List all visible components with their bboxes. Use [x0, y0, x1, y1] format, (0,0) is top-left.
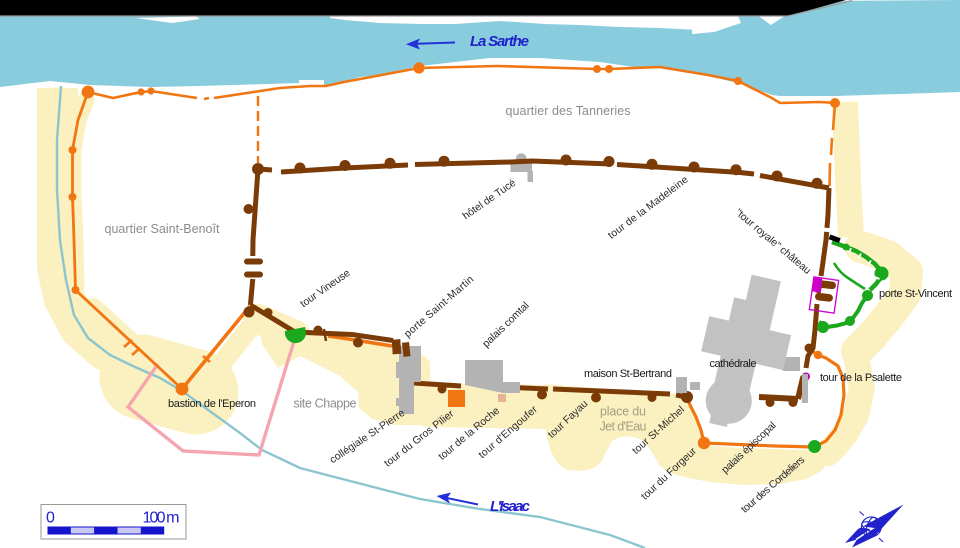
svg-text:0: 0 — [46, 510, 55, 527]
svg-text:quartier des Tanneries: quartier des Tanneries — [506, 104, 631, 118]
svg-text:tour de la Psalette: tour de la Psalette — [820, 372, 902, 384]
svg-text:bastion de l'Eperon: bastion de l'Eperon — [168, 398, 256, 410]
svg-text:L'Isaac: L'Isaac — [490, 498, 531, 515]
svg-text:maison St-Bertrand: maison St-Bertrand — [584, 368, 672, 380]
svg-text:place du: place du — [600, 405, 646, 419]
svg-text:cathédrale: cathédrale — [710, 358, 757, 370]
svg-text:porte St-Vincent: porte St-Vincent — [879, 288, 952, 300]
svg-text:quartier Saint-Benoît: quartier Saint-Benoît — [105, 222, 221, 236]
svg-text:site Chappe: site Chappe — [294, 397, 357, 411]
svg-text:Jet d'Eau: Jet d'Eau — [600, 420, 647, 434]
svg-text:La Sarthe: La Sarthe — [470, 33, 529, 50]
svg-text:100 m: 100 m — [143, 510, 180, 527]
